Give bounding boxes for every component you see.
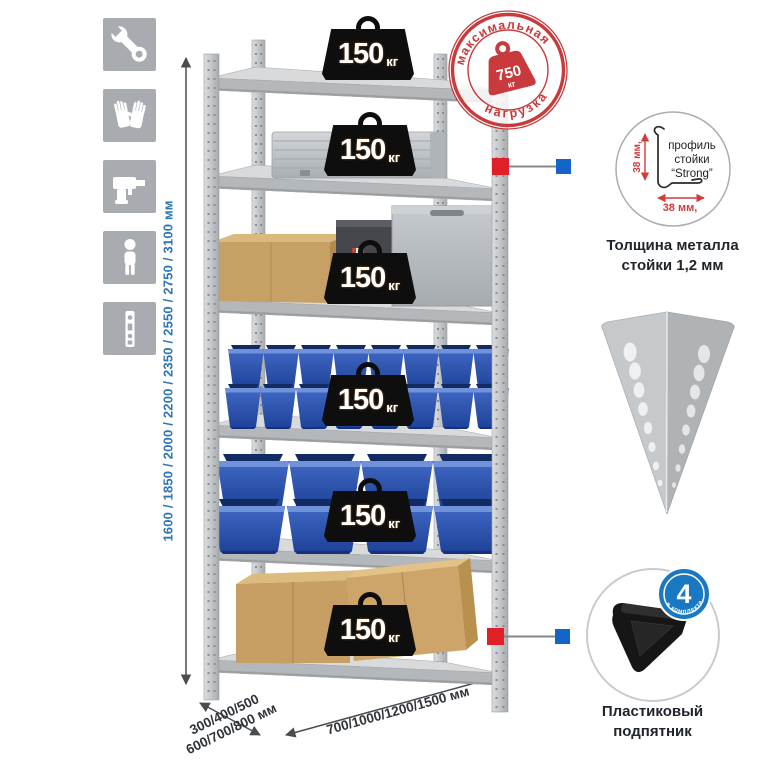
- foot-caption-line1: Пластиковый: [602, 703, 703, 720]
- wrench-icon: [103, 18, 156, 71]
- profile-caption: Толщина металла стойки 1,2 мм: [585, 236, 760, 276]
- plastic-foot-detail: 4 в комплекте: [583, 563, 725, 705]
- profile-label-1: профиль: [668, 140, 716, 152]
- profile-label-2: стойки: [674, 154, 709, 166]
- load-unit: кг: [388, 278, 400, 293]
- drill-icon: [103, 160, 156, 213]
- load-unit: кг: [386, 400, 398, 415]
- load-value: 150: [340, 614, 385, 647]
- person-icon: [103, 231, 156, 284]
- foot-caption-line2: подпятник: [613, 723, 692, 740]
- shelf-load-badge: 150кг: [324, 112, 416, 178]
- load-value: 150: [338, 38, 383, 71]
- product-infographic: 1600 / 1850 / 2000 / 2200 / 2350 / 2550 …: [0, 0, 765, 765]
- max-load-stamp: максимальная нагрузка 750 кг: [443, 5, 573, 135]
- profile-caption-line2: стойки 1,2 мм: [622, 257, 724, 274]
- post-profile-detail: 38 мм, 38 мм, профиль стойки “Strong”: [612, 108, 734, 230]
- red-marker-top: [492, 158, 509, 175]
- shelf-load-badge: 150кг: [322, 16, 414, 82]
- profile-dim-horizontal: 38 мм,: [663, 202, 698, 214]
- profile-label-3: “Strong”: [671, 168, 713, 180]
- blue-marker-top: [556, 159, 571, 174]
- load-unit: кг: [388, 516, 400, 531]
- load-value: 150: [340, 500, 385, 533]
- load-unit: кг: [388, 630, 400, 645]
- blue-marker-bottom: [555, 629, 570, 644]
- foot-caption: Пластиковый подпятник: [570, 702, 735, 742]
- load-value: 150: [338, 384, 383, 417]
- red-marker-bottom: [487, 628, 504, 645]
- load-value: 150: [340, 262, 385, 295]
- profile-caption-line1: Толщина металла: [606, 237, 738, 254]
- shelf-load-badge: 150кг: [324, 592, 416, 658]
- upright-profile-icon: [103, 302, 156, 355]
- shelf-load-badge: 150кг: [324, 478, 416, 544]
- gloves-icon: [103, 89, 156, 142]
- profile-dim-vertical: 38 мм,: [632, 141, 643, 173]
- load-unit: кг: [388, 150, 400, 165]
- shelf-load-badge: 150кг: [322, 362, 414, 428]
- load-unit: кг: [386, 54, 398, 69]
- load-value: 150: [340, 134, 385, 167]
- quantity-value: 4: [676, 579, 691, 609]
- height-dimension-label: 1600 / 1850 / 2000 / 2200 / 2350 / 2550 …: [161, 200, 176, 541]
- shelf-load-badge: 150кг: [324, 240, 416, 306]
- angle-post-illustration: [602, 312, 735, 514]
- quantity-badge: 4 в комплекте: [658, 568, 710, 620]
